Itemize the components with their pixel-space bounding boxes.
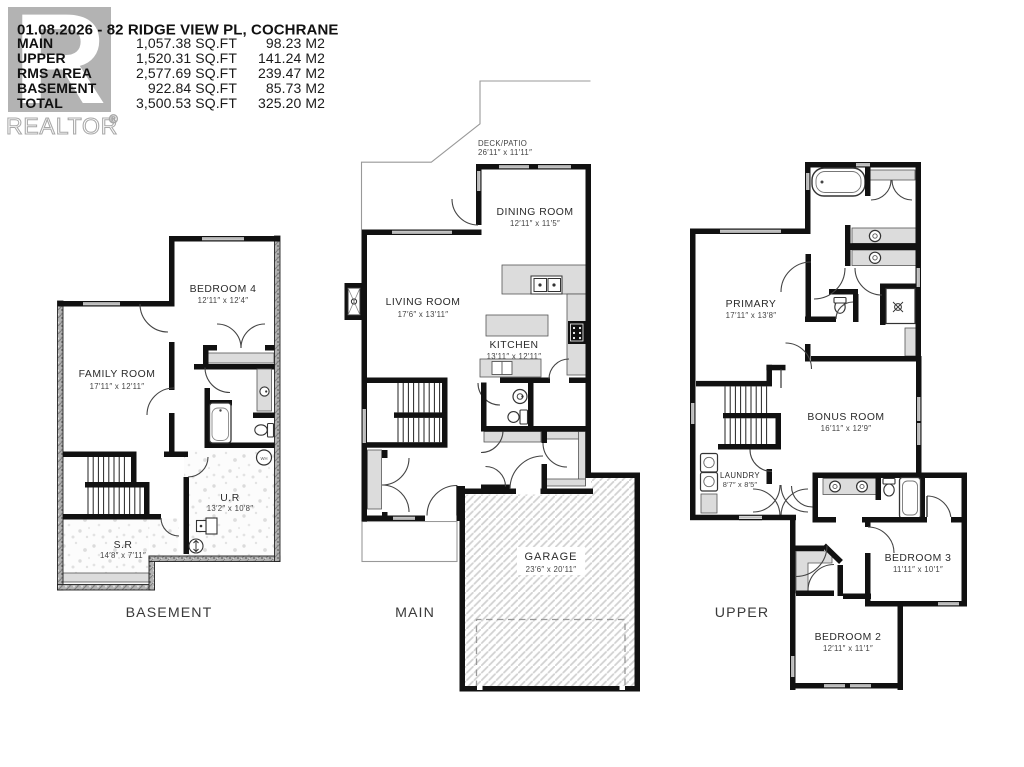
svg-text:12′11″ x 11′1″: 12′11″ x 11′1″ bbox=[823, 644, 873, 653]
svg-text:922.84 SQ.FT: 922.84 SQ.FT bbox=[148, 80, 237, 96]
svg-text:12′11″ x 12′4″: 12′11″ x 12′4″ bbox=[198, 296, 249, 305]
svg-text:UPPER: UPPER bbox=[715, 605, 769, 621]
svg-text:14′8″ x 7′11″: 14′8″ x 7′11″ bbox=[100, 551, 146, 560]
svg-text:26′11″ x 11′11″: 26′11″ x 11′11″ bbox=[478, 148, 532, 157]
svg-text:BASEMENT: BASEMENT bbox=[17, 80, 97, 96]
svg-text:17′11″ x 12′11″: 17′11″ x 12′11″ bbox=[90, 382, 145, 391]
svg-text:BEDROOM 4: BEDROOM 4 bbox=[190, 284, 257, 295]
svg-text:11′11″ x 10′1″: 11′11″ x 10′1″ bbox=[893, 565, 943, 574]
svg-text:FAMILY ROOM: FAMILY ROOM bbox=[79, 369, 156, 380]
svg-text:13′2″ x 10′8″: 13′2″ x 10′8″ bbox=[207, 504, 254, 513]
svg-text:DECK/PATIO: DECK/PATIO bbox=[478, 139, 527, 148]
svg-text:BASEMENT: BASEMENT bbox=[126, 605, 213, 621]
svg-text:BEDROOM 3: BEDROOM 3 bbox=[885, 553, 952, 564]
svg-text:17′11″ x 13′8″: 17′11″ x 13′8″ bbox=[726, 311, 777, 320]
svg-text:LIVING ROOM: LIVING ROOM bbox=[386, 297, 461, 308]
svg-text:2,577.69 SQ.FT: 2,577.69 SQ.FT bbox=[136, 65, 237, 81]
svg-text:13′11″ x 12′11″: 13′11″ x 12′11″ bbox=[487, 352, 542, 361]
svg-text:TOTAL: TOTAL bbox=[17, 95, 63, 111]
svg-text:23′6″ x 20′11″: 23′6″ x 20′11″ bbox=[526, 565, 577, 574]
svg-text:85.73 M2: 85.73 M2 bbox=[266, 80, 325, 96]
svg-text:GARAGE: GARAGE bbox=[524, 551, 577, 563]
svg-text:DINING ROOM: DINING ROOM bbox=[496, 207, 573, 218]
svg-text:S.R: S.R bbox=[114, 540, 133, 551]
svg-text:WH: WH bbox=[261, 456, 268, 461]
svg-text:BEDROOM 2: BEDROOM 2 bbox=[815, 632, 882, 643]
svg-text:141.24 M2: 141.24 M2 bbox=[258, 50, 325, 66]
svg-text:LAUNDRY: LAUNDRY bbox=[720, 471, 760, 480]
svg-text:MAIN: MAIN bbox=[17, 35, 53, 51]
svg-text:PRIMARY: PRIMARY bbox=[726, 299, 777, 310]
svg-text:BONUS ROOM: BONUS ROOM bbox=[807, 412, 884, 423]
svg-text:RMS AREA: RMS AREA bbox=[17, 65, 92, 81]
svg-text:239.47 M2: 239.47 M2 bbox=[258, 65, 325, 81]
svg-text:®: ® bbox=[109, 112, 118, 126]
svg-text:16′11″ x 12′9″: 16′11″ x 12′9″ bbox=[821, 424, 872, 433]
svg-text:REALTOR: REALTOR bbox=[6, 113, 118, 139]
svg-text:KITCHEN: KITCHEN bbox=[489, 340, 538, 351]
svg-text:3,500.53 SQ.FT: 3,500.53 SQ.FT bbox=[136, 95, 237, 111]
svg-text:325.20 M2: 325.20 M2 bbox=[258, 95, 325, 111]
svg-text:17′6″ x 13′11″: 17′6″ x 13′11″ bbox=[398, 310, 449, 319]
svg-text:12′11″ x 11′5″: 12′11″ x 11′5″ bbox=[510, 219, 560, 228]
svg-text:8′7″ x 8′5″: 8′7″ x 8′5″ bbox=[723, 480, 758, 489]
svg-text:U.R: U.R bbox=[220, 493, 239, 504]
svg-text:MAIN: MAIN bbox=[395, 605, 435, 621]
svg-text:UPPER: UPPER bbox=[17, 50, 66, 66]
svg-text:1,520.31 SQ.FT: 1,520.31 SQ.FT bbox=[136, 50, 237, 66]
svg-text:98.23 M2: 98.23 M2 bbox=[266, 35, 325, 51]
svg-text:1,057.38 SQ.FT: 1,057.38 SQ.FT bbox=[136, 35, 237, 51]
